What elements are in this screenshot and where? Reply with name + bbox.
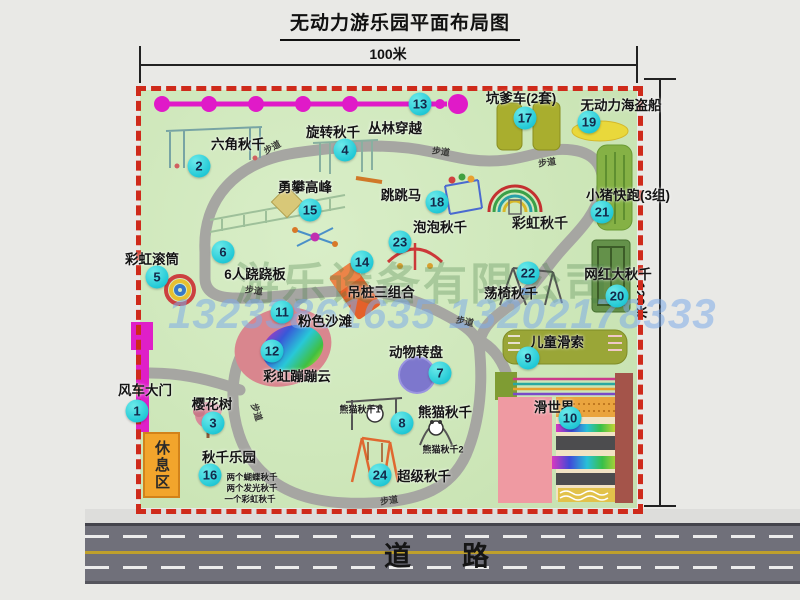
kids-zipline-zone	[495, 330, 627, 400]
pit-cart-zone-2	[533, 102, 560, 150]
pirate-ship-icon	[572, 121, 628, 141]
seesaw-icon	[292, 227, 338, 247]
hexagon-swing-icon	[166, 127, 262, 169]
piggy-run-zone	[597, 145, 632, 230]
pit-cart-zone-1	[497, 103, 522, 150]
watermark-phone: 13233861635 13202178333	[168, 290, 717, 338]
super-swing-icon	[352, 438, 398, 482]
panda-swing-icon	[346, 398, 452, 445]
rest-area-label: 休息区	[151, 440, 172, 491]
cherry-tree-icon	[193, 402, 222, 438]
path-gate	[150, 373, 240, 390]
jungle-crossing-zipline-icon	[154, 94, 468, 114]
slide-world-zone	[498, 373, 633, 503]
rest-area-zone: 休息区	[143, 432, 180, 498]
road-label: 道 路	[384, 534, 501, 573]
animal-carousel-icon	[399, 357, 435, 393]
climbing-peak-icon	[210, 186, 345, 232]
road: 道 路	[85, 523, 800, 584]
rainbow-swing-icon	[489, 186, 541, 214]
park-layout-map: 无动力游乐园平面布局图 100米 120米	[0, 0, 800, 600]
jumping-horse-icon	[445, 174, 482, 215]
